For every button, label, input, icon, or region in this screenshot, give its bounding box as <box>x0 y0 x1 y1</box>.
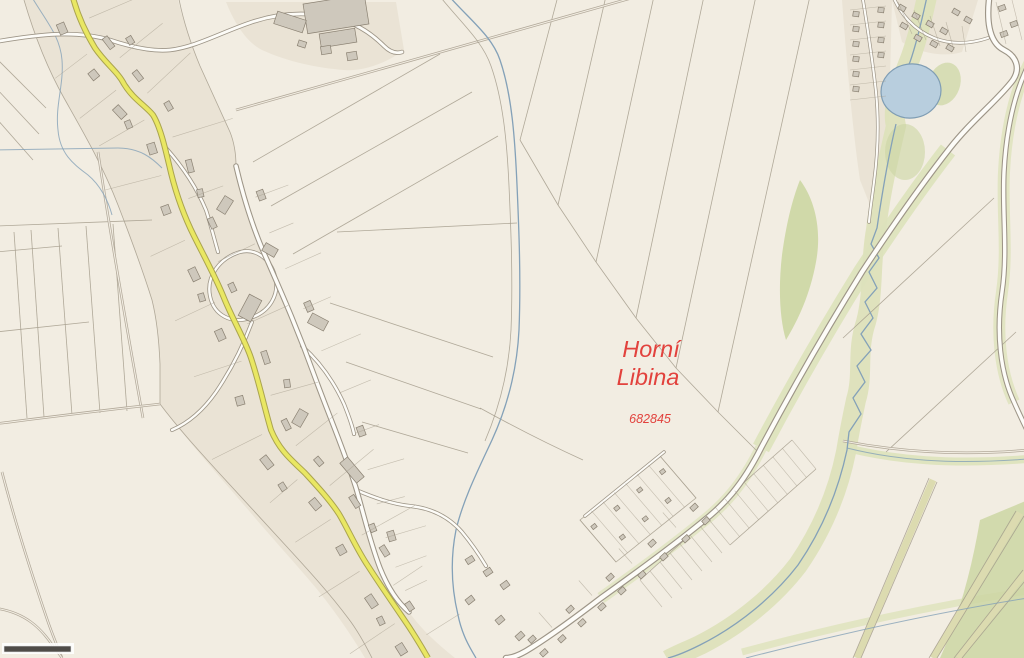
building <box>878 22 885 28</box>
vegetation <box>885 124 925 180</box>
scale-bar <box>2 643 74 654</box>
building <box>853 71 860 77</box>
settlement-label-line1: Horní <box>622 336 682 362</box>
building <box>853 56 860 62</box>
cadastral-code-label: 682845 <box>629 412 671 426</box>
building <box>853 11 860 17</box>
map-canvas[interactable]: Horní Libina 682845 <box>0 0 1024 658</box>
building <box>878 37 885 43</box>
building <box>346 51 357 60</box>
building <box>284 379 291 388</box>
building <box>853 26 860 32</box>
building <box>853 41 860 47</box>
cadastral-map[interactable]: Horní Libina 682845 <box>0 0 1024 658</box>
scale-bar <box>4 646 71 652</box>
building <box>853 86 860 92</box>
building <box>878 52 885 58</box>
settlement-label-line2: Libina <box>617 364 680 390</box>
building <box>320 45 331 54</box>
building <box>878 7 885 13</box>
